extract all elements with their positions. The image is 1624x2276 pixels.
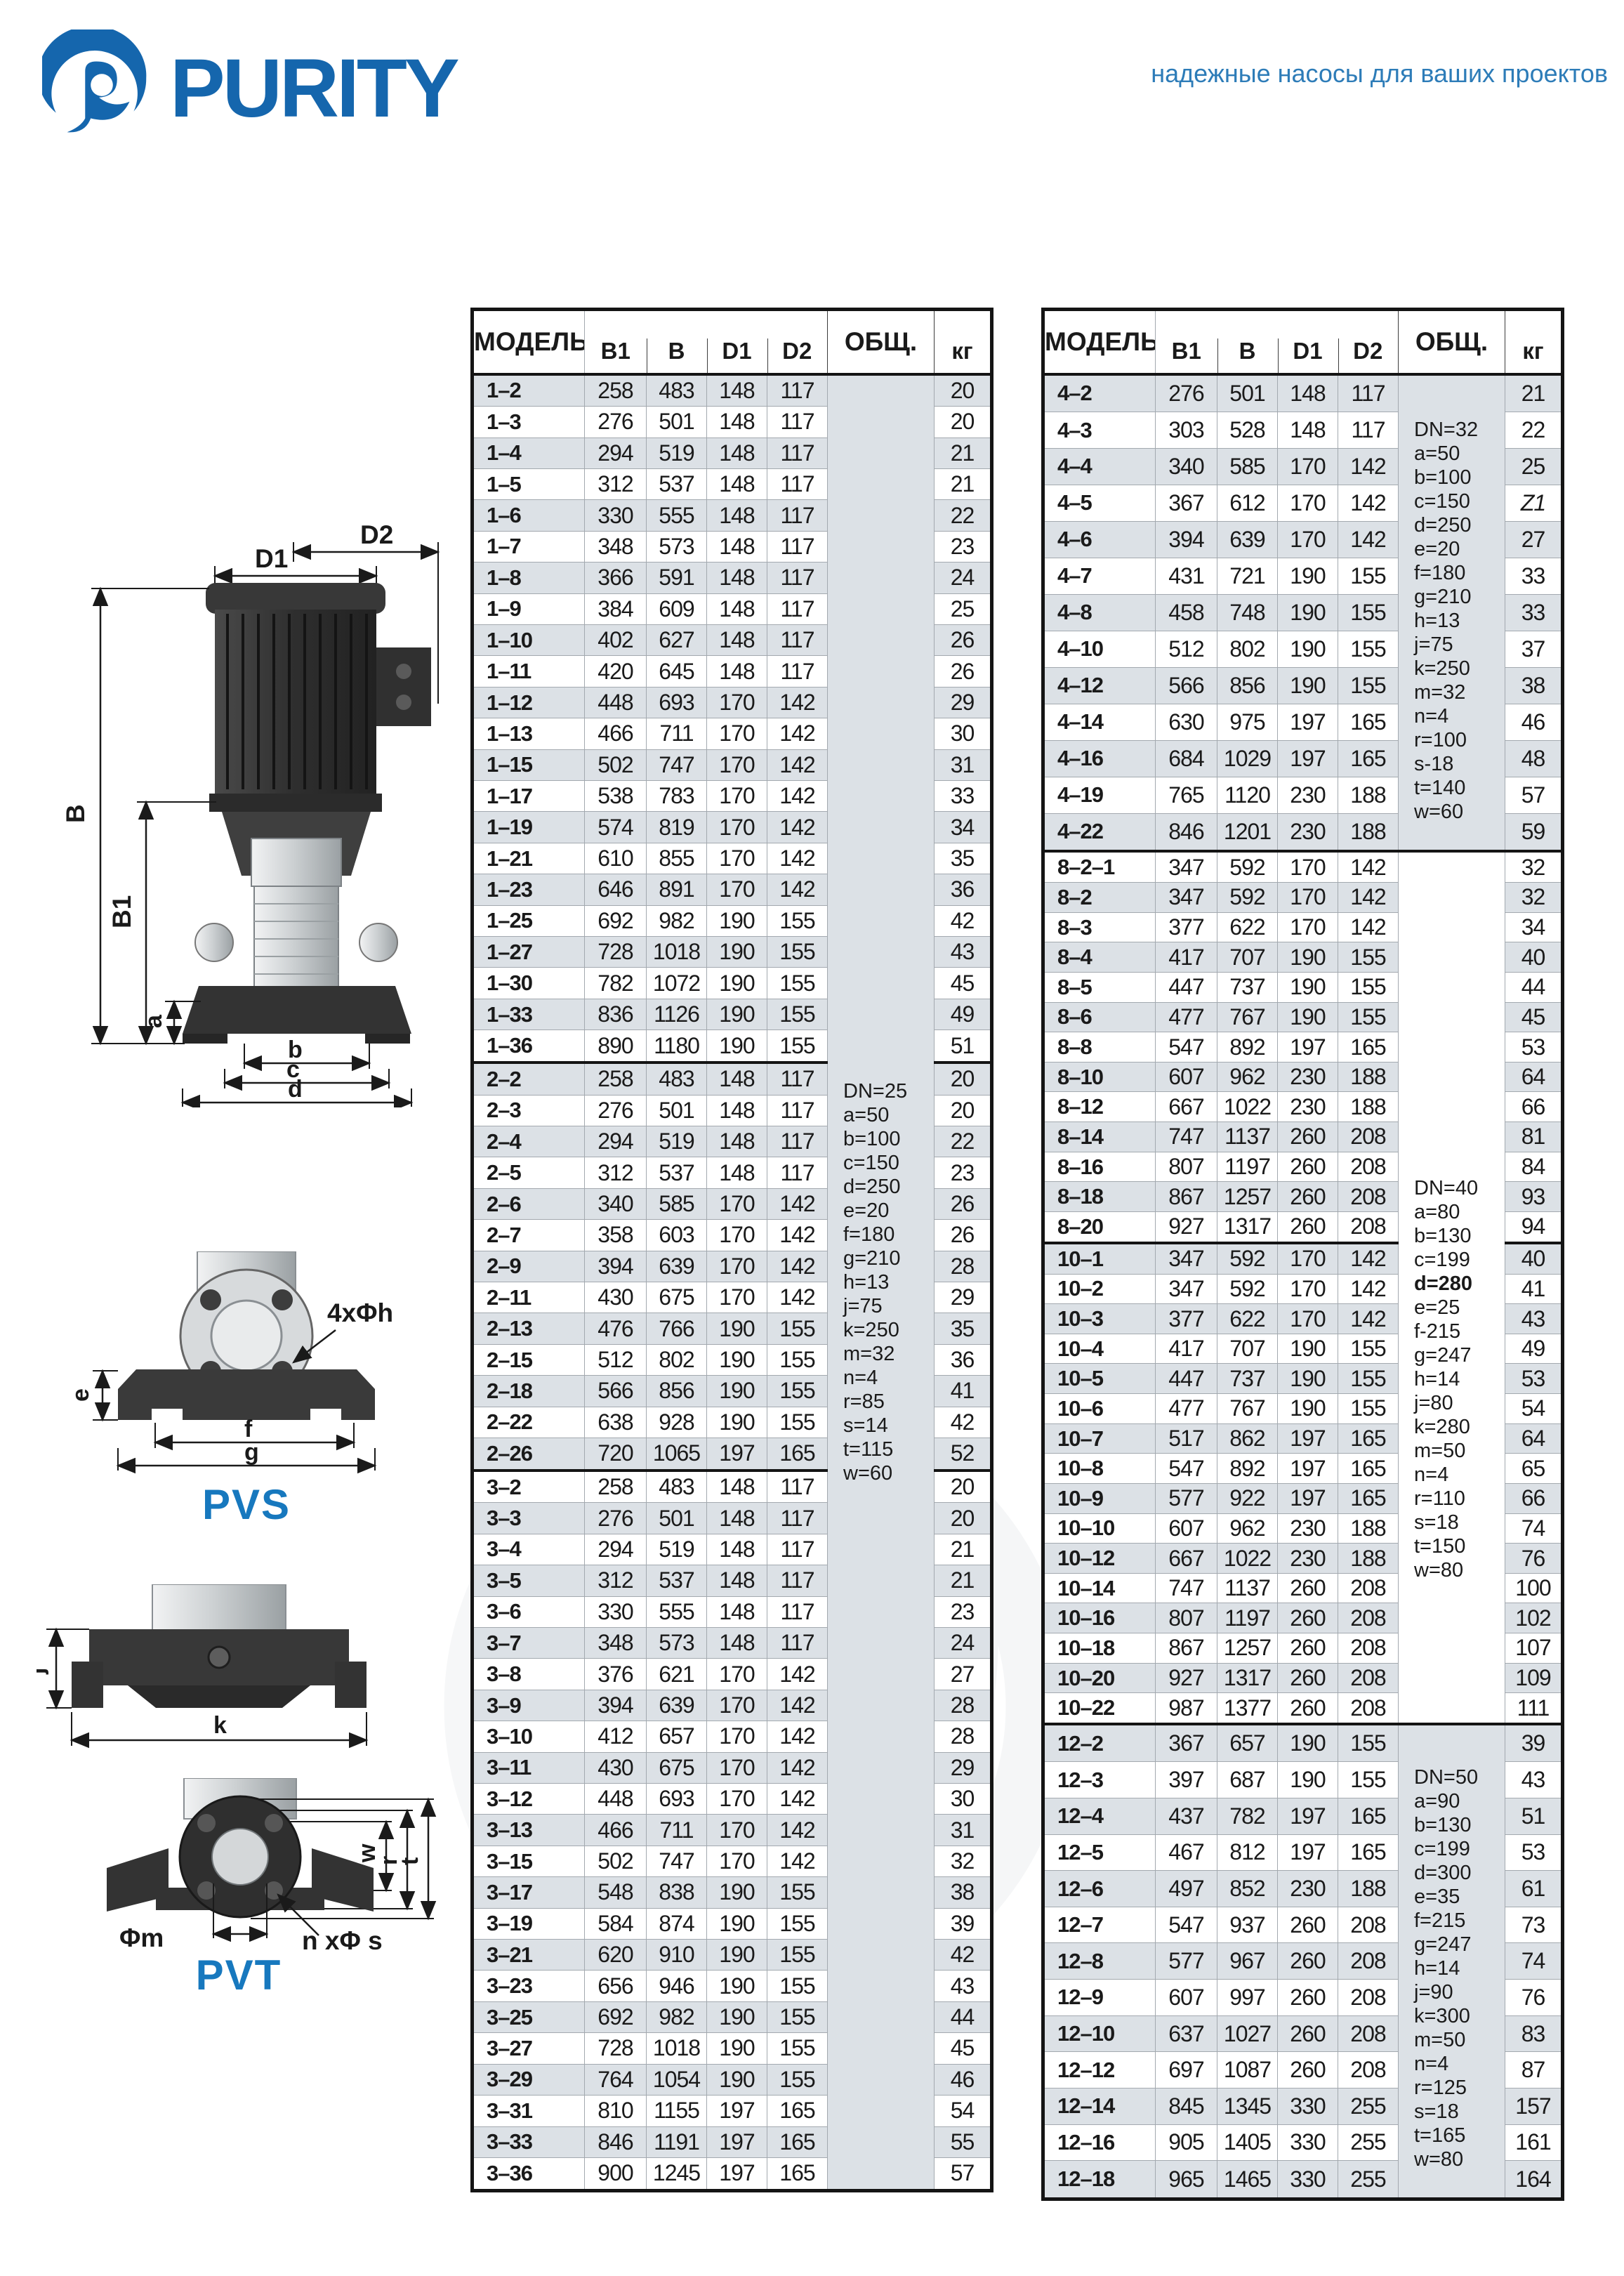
d1-cell: 190 xyxy=(1278,972,1338,1002)
d2-cell: 117 xyxy=(767,563,828,593)
d2-cell: 117 xyxy=(767,1628,828,1659)
d2-cell: 155 xyxy=(1338,1394,1399,1424)
dim-label-a: a xyxy=(140,1014,167,1028)
b-cell: 1137 xyxy=(1217,1122,1278,1152)
b1-cell: 347 xyxy=(1156,851,1217,882)
d2-cell: 165 xyxy=(767,2157,828,2190)
d2-cell: 155 xyxy=(767,2001,828,2032)
d1-cell: 148 xyxy=(707,407,767,438)
b1-cell: 420 xyxy=(585,656,647,687)
model-cell: 8–14 xyxy=(1043,1122,1156,1152)
model-cell: 8–18 xyxy=(1043,1182,1156,1212)
pvs-side-view-diagram: D2 D1 xyxy=(41,521,444,1107)
b-cell: 1257 xyxy=(1217,1633,1278,1664)
weight-cell: 161 xyxy=(1505,2124,1563,2161)
d2-cell: 155 xyxy=(767,1313,828,1344)
weight-cell: 66 xyxy=(1505,1483,1563,1513)
d1-cell: 170 xyxy=(707,1220,767,1251)
weight-cell: 20 xyxy=(935,1095,992,1126)
weight-cell: 44 xyxy=(1505,972,1563,1002)
d2-cell: 142 xyxy=(1338,448,1399,485)
d2-cell: 165 xyxy=(1338,1032,1399,1063)
d2-cell: 142 xyxy=(767,1188,828,1219)
d1-cell: 170 xyxy=(1278,521,1338,558)
d2-cell: 208 xyxy=(1338,1633,1399,1664)
model-cell: 4–3 xyxy=(1043,412,1156,449)
b1-cell: 447 xyxy=(1156,1364,1217,1394)
model-cell: 10–8 xyxy=(1043,1454,1156,1484)
model-cell: 4–12 xyxy=(1043,667,1156,704)
b-cell: 1345 xyxy=(1217,2088,1278,2124)
d2-cell: 208 xyxy=(1338,1980,1399,2016)
d1-cell: 148 xyxy=(707,593,767,624)
b-cell: 537 xyxy=(647,1157,707,1188)
weight-cell: 64 xyxy=(1505,1423,1563,1454)
d2-cell: 188 xyxy=(1338,1062,1399,1092)
d2-cell: 117 xyxy=(767,468,828,499)
weight-cell: 102 xyxy=(1505,1603,1563,1633)
d2-cell: 117 xyxy=(767,1471,828,1503)
d2-cell: 165 xyxy=(1338,1798,1399,1834)
weight-cell: 87 xyxy=(1505,2052,1563,2088)
d2-cell: 155 xyxy=(1338,558,1399,594)
d2-cell: 117 xyxy=(767,1596,828,1627)
d2-cell: 142 xyxy=(1338,1274,1399,1304)
weight-cell: 52 xyxy=(935,1438,992,1471)
b1-cell: 377 xyxy=(1156,912,1217,942)
b1-cell: 900 xyxy=(585,2157,647,2190)
d1-cell: 260 xyxy=(1278,1573,1338,1603)
d2-cell: 142 xyxy=(767,1282,828,1313)
d1-cell: 148 xyxy=(707,625,767,656)
b-cell: 856 xyxy=(647,1376,707,1407)
b-cell: 627 xyxy=(647,625,707,656)
model-cell: 2–9 xyxy=(473,1251,585,1282)
d2-cell: 155 xyxy=(767,1971,828,2001)
weight-cell: 25 xyxy=(1505,448,1563,485)
d2-cell: 117 xyxy=(767,438,828,468)
weight-cell: 29 xyxy=(935,687,992,718)
b1-cell: 312 xyxy=(585,1565,647,1596)
brand-name: PURITY xyxy=(170,29,457,147)
b-cell: 891 xyxy=(647,874,707,905)
weight-cell: 31 xyxy=(935,749,992,780)
d2-cell: 255 xyxy=(1338,2088,1399,2124)
model-cell: 8–16 xyxy=(1043,1152,1156,1182)
b-cell: 747 xyxy=(647,749,707,780)
pvt-series-label: PVT xyxy=(169,1951,309,1999)
model-cell: 10–9 xyxy=(1043,1483,1156,1513)
weight-cell: 22 xyxy=(935,1126,992,1157)
b1-cell: 867 xyxy=(1156,1182,1217,1212)
model-cell: 3–21 xyxy=(473,1940,585,1971)
b1-cell: 476 xyxy=(585,1313,647,1344)
b-cell: 519 xyxy=(647,1126,707,1157)
b1-cell: 467 xyxy=(1156,1834,1217,1871)
weight-cell: Z1 xyxy=(1505,485,1563,521)
col-header-b1: B1 xyxy=(585,310,647,374)
d1-cell: 230 xyxy=(1278,813,1338,851)
model-cell: 4–5 xyxy=(1043,485,1156,521)
model-cell: 3–6 xyxy=(473,1596,585,1627)
weight-cell: 22 xyxy=(1505,412,1563,449)
d1-cell: 190 xyxy=(707,1313,767,1344)
d2-cell: 188 xyxy=(1338,777,1399,813)
weight-cell: 20 xyxy=(935,1471,992,1503)
dim-label-t: t xyxy=(397,1857,423,1865)
b1-cell: 728 xyxy=(585,2033,647,2064)
b-cell: 856 xyxy=(1217,667,1278,704)
pvt-flange-view-diagram: w r t Φm n xΦ s xyxy=(44,1778,451,1961)
b1-cell: 294 xyxy=(585,1126,647,1157)
d1-cell: 190 xyxy=(1278,1364,1338,1394)
d1-cell: 148 xyxy=(707,1095,767,1126)
b-cell: 483 xyxy=(647,374,707,407)
d1-cell: 190 xyxy=(707,1344,767,1375)
b-cell: 997 xyxy=(1217,1980,1278,2016)
b-cell: 621 xyxy=(647,1659,707,1690)
b1-cell: 512 xyxy=(585,1344,647,1375)
weight-cell: 53 xyxy=(1505,1032,1563,1063)
d1-cell: 170 xyxy=(1278,448,1338,485)
weight-cell: 36 xyxy=(935,1344,992,1375)
model-cell: 1–10 xyxy=(473,625,585,656)
b1-cell: 258 xyxy=(585,374,647,407)
header-row: МОДЕЛЬ B1 B D1 D2 ОБЩ. кг xyxy=(1043,310,1563,374)
d2-cell: 142 xyxy=(767,1846,828,1876)
weight-cell: 26 xyxy=(935,625,992,656)
d1-cell: 148 xyxy=(707,468,767,499)
model-cell: 8–3 xyxy=(1043,912,1156,942)
d1-cell: 170 xyxy=(707,781,767,812)
b1-cell: 303 xyxy=(1156,412,1217,449)
b1-cell: 397 xyxy=(1156,1762,1217,1798)
model-cell: 3–4 xyxy=(473,1534,585,1565)
b1-cell: 276 xyxy=(585,1095,647,1126)
b1-cell: 417 xyxy=(1156,1334,1217,1364)
col-header-obshch: ОБЩ. xyxy=(1399,310,1505,374)
b1-cell: 348 xyxy=(585,1628,647,1659)
b-cell: 1197 xyxy=(1217,1152,1278,1182)
purity-swirl-icon xyxy=(42,29,160,147)
d1-cell: 190 xyxy=(1278,942,1338,973)
d1-cell: 170 xyxy=(707,1282,767,1313)
b1-cell: 276 xyxy=(585,407,647,438)
weight-cell: 57 xyxy=(935,2157,992,2190)
model-cell: 3–25 xyxy=(473,2001,585,2032)
weight-cell: 33 xyxy=(1505,594,1563,631)
model-cell: 1–5 xyxy=(473,468,585,499)
model-cell: 12–3 xyxy=(1043,1762,1156,1798)
col-header-d1: D1 xyxy=(1278,310,1338,374)
weight-cell: 100 xyxy=(1505,1573,1563,1603)
model-cell: 8–2–1 xyxy=(1043,851,1156,882)
d1-cell: 148 xyxy=(707,656,767,687)
b-cell: 1405 xyxy=(1217,2124,1278,2161)
model-cell: 8–10 xyxy=(1043,1062,1156,1092)
d2-cell: 142 xyxy=(1338,883,1399,913)
b1-cell: 905 xyxy=(1156,2124,1217,2161)
b1-cell: 607 xyxy=(1156,1980,1217,2016)
model-cell: 10–2 xyxy=(1043,1274,1156,1304)
d1-cell: 190 xyxy=(707,1908,767,1939)
weight-cell: 76 xyxy=(1505,1544,1563,1574)
model-cell: 12–2 xyxy=(1043,1724,1156,1762)
d2-cell: 155 xyxy=(1338,1002,1399,1032)
model-cell: 2–15 xyxy=(473,1344,585,1375)
b-cell: 573 xyxy=(647,1628,707,1659)
b1-cell: 965 xyxy=(1156,2161,1217,2199)
b-cell: 639 xyxy=(647,1251,707,1282)
d2-cell: 142 xyxy=(767,812,828,843)
d1-cell: 197 xyxy=(1278,1423,1338,1454)
b-cell: 892 xyxy=(1217,1454,1278,1484)
d2-cell: 188 xyxy=(1338,1544,1399,1574)
weight-cell: 66 xyxy=(1505,1092,1563,1122)
b1-cell: 394 xyxy=(585,1690,647,1721)
weight-cell: 29 xyxy=(935,1282,992,1313)
model-cell: 12–14 xyxy=(1043,2088,1156,2124)
b-cell: 747 xyxy=(647,1846,707,1876)
d1-cell: 170 xyxy=(707,1815,767,1846)
d2-cell: 142 xyxy=(1338,1304,1399,1334)
b1-cell: 867 xyxy=(1156,1633,1217,1664)
model-cell: 2–6 xyxy=(473,1188,585,1219)
d1-cell: 170 xyxy=(707,1784,767,1815)
model-cell: 10–5 xyxy=(1043,1364,1156,1394)
b-cell: 675 xyxy=(647,1752,707,1783)
b1-cell: 764 xyxy=(585,2064,647,2095)
d2-cell: 255 xyxy=(1338,2124,1399,2161)
weight-cell: 51 xyxy=(1505,1798,1563,1834)
b1-cell: 377 xyxy=(1156,1304,1217,1334)
d2-cell: 165 xyxy=(1338,740,1399,777)
b1-cell: 330 xyxy=(585,500,647,531)
weight-cell: 76 xyxy=(1505,1980,1563,2016)
weight-cell: 157 xyxy=(1505,2088,1563,2124)
d1-cell: 148 xyxy=(707,374,767,407)
d1-cell: 148 xyxy=(1278,374,1338,412)
d2-cell: 208 xyxy=(1338,1182,1399,1212)
d1-cell: 190 xyxy=(1278,1334,1338,1364)
weight-cell: 34 xyxy=(935,812,992,843)
b-cell: 1054 xyxy=(647,2064,707,2095)
model-cell: 10–14 xyxy=(1043,1573,1156,1603)
d2-cell: 142 xyxy=(1338,521,1399,558)
b-cell: 501 xyxy=(647,1503,707,1534)
weight-cell: 111 xyxy=(1505,1693,1563,1724)
d2-cell: 208 xyxy=(1338,1943,1399,1980)
b1-cell: 584 xyxy=(585,1908,647,1939)
b-cell: 639 xyxy=(1217,521,1278,558)
d1-cell: 190 xyxy=(1278,1394,1338,1424)
b1-cell: 394 xyxy=(1156,521,1217,558)
b1-cell: 502 xyxy=(585,749,647,780)
b-cell: 585 xyxy=(647,1188,707,1219)
d1-cell: 170 xyxy=(707,1659,767,1690)
d2-cell: 155 xyxy=(767,1030,828,1063)
d1-cell: 190 xyxy=(707,2033,767,2064)
weight-cell: 39 xyxy=(1505,1724,1563,1762)
b-cell: 1120 xyxy=(1217,777,1278,813)
b-cell: 922 xyxy=(1217,1483,1278,1513)
b-cell: 622 xyxy=(1217,1304,1278,1334)
weight-cell: 30 xyxy=(935,718,992,749)
b-cell: 767 xyxy=(1217,1394,1278,1424)
b-cell: 748 xyxy=(1217,594,1278,631)
d2-cell: 208 xyxy=(1338,1152,1399,1182)
dim-label-e: e xyxy=(67,1388,94,1402)
b1-cell: 637 xyxy=(1156,2015,1217,2052)
b1-cell: 437 xyxy=(1156,1798,1217,1834)
d2-cell: 142 xyxy=(767,1251,828,1282)
d1-cell: 170 xyxy=(1278,912,1338,942)
model-cell: 3–3 xyxy=(473,1503,585,1534)
b-cell: 555 xyxy=(647,500,707,531)
b1-cell: 630 xyxy=(1156,704,1217,740)
d1-cell: 330 xyxy=(1278,2088,1338,2124)
b1-cell: 312 xyxy=(585,1157,647,1188)
b-cell: 711 xyxy=(647,718,707,749)
col-header-model: МОДЕЛЬ xyxy=(473,310,585,374)
weight-cell: 45 xyxy=(935,968,992,999)
dim-label-g: g xyxy=(244,1439,259,1466)
weight-cell: 38 xyxy=(1505,667,1563,704)
d1-cell: 170 xyxy=(707,687,767,718)
weight-cell: 64 xyxy=(1505,1062,1563,1092)
model-cell: 1–30 xyxy=(473,968,585,999)
b-cell: 707 xyxy=(1217,942,1278,973)
pvs-series-label: PVS xyxy=(176,1480,317,1529)
d1-cell: 170 xyxy=(1278,883,1338,913)
b-cell: 528 xyxy=(1217,412,1278,449)
b-cell: 721 xyxy=(1217,558,1278,594)
b1-cell: 656 xyxy=(585,1971,647,2001)
b-cell: 657 xyxy=(1217,1724,1278,1762)
d2-cell: 117 xyxy=(767,531,828,562)
b1-cell: 610 xyxy=(585,843,647,874)
weight-cell: 34 xyxy=(1505,912,1563,942)
d1-cell: 148 xyxy=(707,563,767,593)
dim-label-j: j xyxy=(37,1668,49,1675)
d2-cell: 142 xyxy=(767,687,828,718)
b1-cell: 258 xyxy=(585,1471,647,1503)
d2-cell: 142 xyxy=(1338,912,1399,942)
pvt-base-side-diagram: j k xyxy=(37,1584,402,1760)
b1-cell: 394 xyxy=(585,1251,647,1282)
d1-cell: 197 xyxy=(707,2157,767,2190)
b1-cell: 684 xyxy=(1156,740,1217,777)
b-cell: 737 xyxy=(1217,972,1278,1002)
d1-cell: 190 xyxy=(1278,1724,1338,1762)
b1-cell: 765 xyxy=(1156,777,1217,813)
d2-cell: 155 xyxy=(767,1877,828,1908)
model-cell: 3–27 xyxy=(473,2033,585,2064)
d1-cell: 230 xyxy=(1278,777,1338,813)
d1-cell: 197 xyxy=(707,2096,767,2126)
d2-cell: 155 xyxy=(767,968,828,999)
weight-cell: 26 xyxy=(935,656,992,687)
d2-cell: 155 xyxy=(1338,942,1399,973)
col-header-kg: кг xyxy=(935,310,992,374)
model-cell: 4–6 xyxy=(1043,521,1156,558)
b1-cell: 402 xyxy=(585,625,647,656)
model-cell: 12–18 xyxy=(1043,2161,1156,2199)
b-cell: 975 xyxy=(1217,704,1278,740)
model-cell: 4–10 xyxy=(1043,631,1156,667)
weight-cell: 36 xyxy=(935,874,992,905)
b1-cell: 347 xyxy=(1156,1274,1217,1304)
model-cell: 12–16 xyxy=(1043,2124,1156,2161)
b1-cell: 458 xyxy=(1156,594,1217,631)
b1-cell: 577 xyxy=(1156,1943,1217,1980)
b1-cell: 667 xyxy=(1156,1092,1217,1122)
d1-cell: 170 xyxy=(707,718,767,749)
d2-cell: 165 xyxy=(767,1438,828,1471)
weight-cell: 84 xyxy=(1505,1152,1563,1182)
model-cell: 3–23 xyxy=(473,1971,585,2001)
model-cell: 1–7 xyxy=(473,531,585,562)
d1-cell: 190 xyxy=(1278,1762,1338,1798)
b1-cell: 502 xyxy=(585,1846,647,1876)
b-cell: 707 xyxy=(1217,1334,1278,1364)
model-cell: 8–8 xyxy=(1043,1032,1156,1063)
d2-cell: 208 xyxy=(1338,1573,1399,1603)
b1-cell: 810 xyxy=(585,2096,647,2126)
model-cell: 3–10 xyxy=(473,1721,585,1752)
b-cell: 928 xyxy=(647,1407,707,1438)
weight-cell: 40 xyxy=(1505,1243,1563,1274)
b-cell: 592 xyxy=(1217,883,1278,913)
col-header-d2: D2 xyxy=(1338,310,1399,374)
weight-cell: 21 xyxy=(1505,374,1563,412)
d1-cell: 148 xyxy=(707,1471,767,1503)
d2-cell: 142 xyxy=(767,843,828,874)
weight-cell: 39 xyxy=(935,1908,992,1939)
b1-cell: 807 xyxy=(1156,1152,1217,1182)
col-header-d2: D2 xyxy=(767,310,828,374)
model-cell: 4–2 xyxy=(1043,374,1156,412)
d1-cell: 148 xyxy=(707,531,767,562)
b1-cell: 927 xyxy=(1156,1663,1217,1693)
d1-cell: 190 xyxy=(707,1971,767,2001)
b1-cell: 477 xyxy=(1156,1394,1217,1424)
weight-cell: 41 xyxy=(1505,1274,1563,1304)
weight-cell: 44 xyxy=(935,2001,992,2032)
d2-cell: 188 xyxy=(1338,1513,1399,1544)
d2-cell: 165 xyxy=(1338,1834,1399,1871)
b1-cell: 348 xyxy=(585,531,647,562)
d1-cell: 190 xyxy=(1278,1002,1338,1032)
b-cell: 675 xyxy=(647,1282,707,1313)
b-cell: 1377 xyxy=(1217,1693,1278,1724)
weight-cell: 54 xyxy=(1505,1394,1563,1424)
d1-cell: 148 xyxy=(707,438,767,468)
d1-cell: 197 xyxy=(707,2126,767,2157)
model-cell: 3–9 xyxy=(473,1690,585,1721)
model-cell: 12–5 xyxy=(1043,1834,1156,1871)
d1-cell: 260 xyxy=(1278,2015,1338,2052)
model-cell: 1–11 xyxy=(473,656,585,687)
b-cell: 622 xyxy=(1217,912,1278,942)
model-cell: 12–7 xyxy=(1043,1907,1156,1943)
b-cell: 519 xyxy=(647,1534,707,1565)
d2-cell: 155 xyxy=(1338,667,1399,704)
b1-cell: 747 xyxy=(1156,1573,1217,1603)
b1-cell: 697 xyxy=(1156,2052,1217,2088)
d1-cell: 260 xyxy=(1278,1152,1338,1182)
d1-cell: 148 xyxy=(707,500,767,531)
